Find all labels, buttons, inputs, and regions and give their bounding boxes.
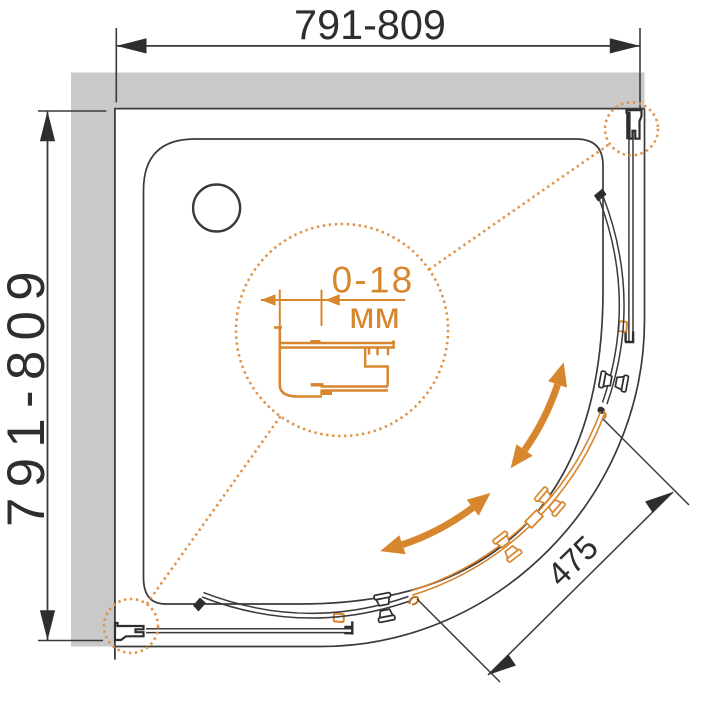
svg-text:791-809: 791-809 bbox=[294, 2, 446, 48]
svg-text:мм: мм bbox=[349, 295, 400, 336]
svg-text:791-809: 791-809 bbox=[0, 261, 56, 527]
